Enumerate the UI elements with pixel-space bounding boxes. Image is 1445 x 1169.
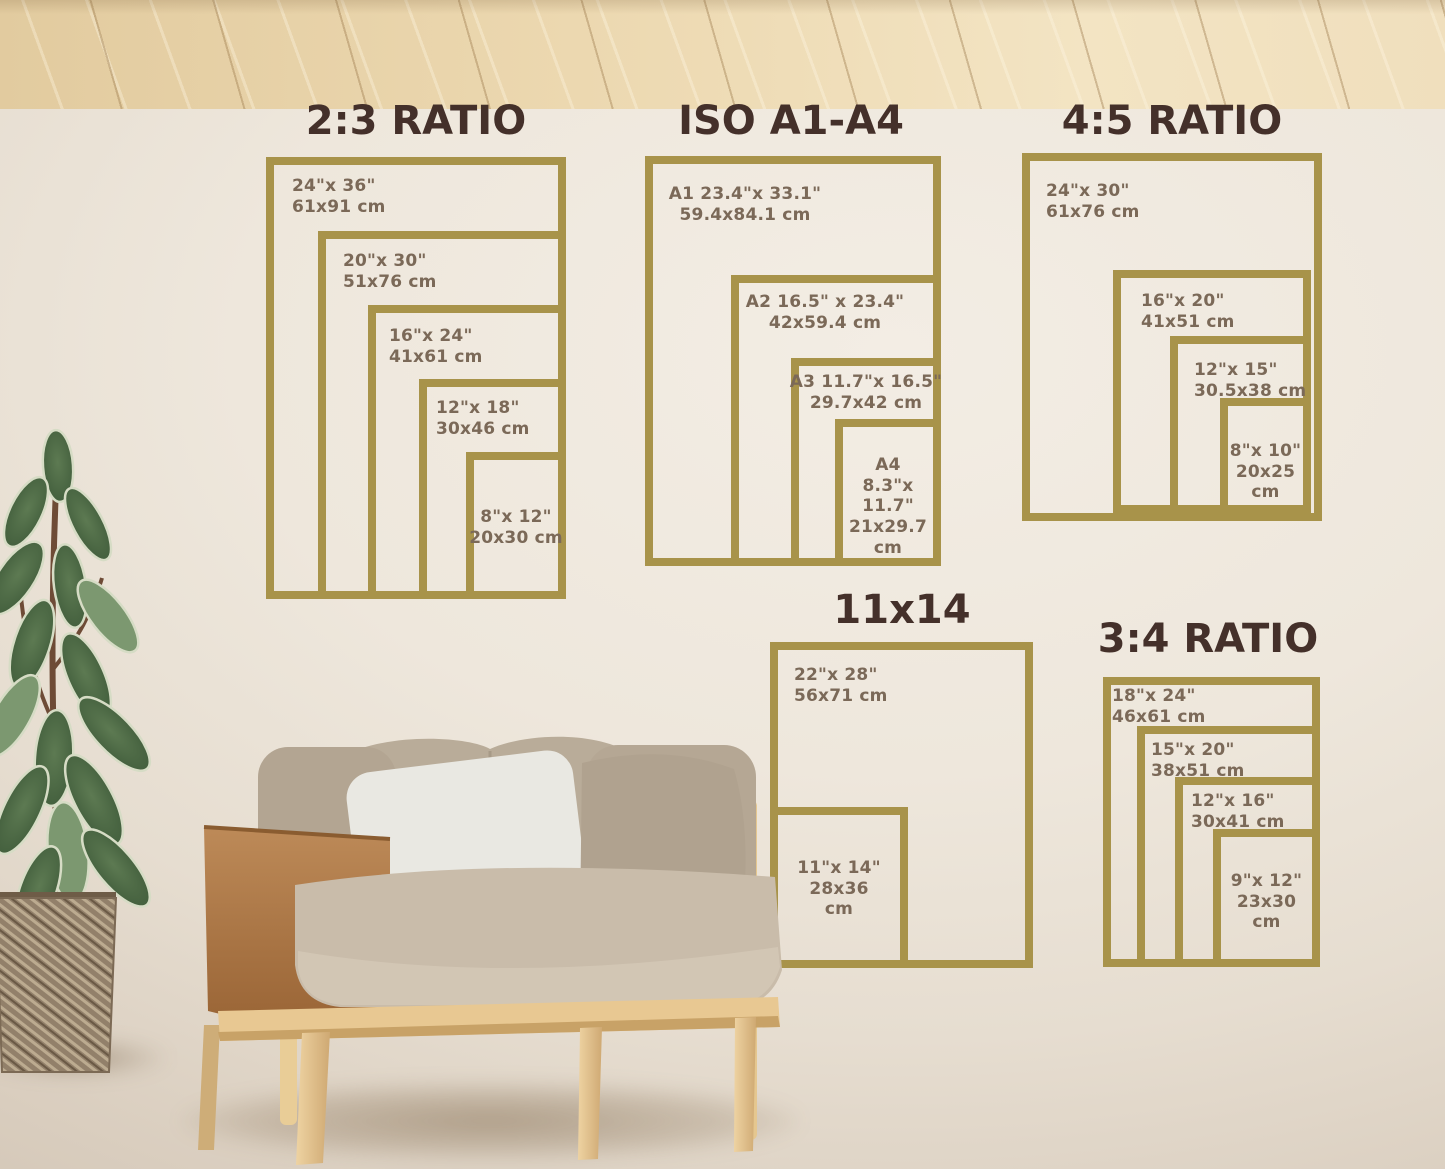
size-metric: 61x91 cm <box>292 197 386 218</box>
size-imperial: 22"x 28" <box>794 665 888 686</box>
frame-label: A3 11.7"x 16.5" 29.7x42 cm <box>778 372 954 413</box>
size-metric-unit: cm <box>770 899 908 920</box>
size-metric: 59.4x84.1 cm <box>645 205 845 226</box>
size-imperial: 9"x 12" <box>1213 871 1320 892</box>
size-metric-unit: cm <box>1213 912 1320 933</box>
size-metric: 56x71 cm <box>794 686 888 707</box>
size-metric: 46x61 cm <box>1112 707 1206 728</box>
size-metric: 41x61 cm <box>389 347 483 368</box>
frame-label: 12"x 18" 30x46 cm <box>436 398 530 439</box>
size-metric: 30.5x38 cm <box>1194 381 1306 402</box>
size-imperial: 16"x 24" <box>389 326 483 347</box>
size-imperial: 12"x 16" <box>1191 791 1285 812</box>
group-title: ISO A1-A4 <box>641 100 941 142</box>
size-metric: 30x41 cm <box>1191 812 1285 833</box>
armchair <box>190 735 790 1165</box>
size-imperial: 8.3"x 11.7" <box>835 476 941 517</box>
frame-label: A4 8.3"x 11.7" 21x29.7 cm <box>835 455 941 559</box>
size-metric: 42x59.4 cm <box>735 313 915 334</box>
frame-label: 12"x 16" 30x41 cm <box>1191 791 1285 832</box>
size-metric: 28x36 <box>770 879 908 900</box>
size-imperial: 18"x 24" <box>1112 686 1206 707</box>
group-title: 2:3 RATIO <box>266 100 566 142</box>
size-imperial: 16"x 20" <box>1141 291 1235 312</box>
size-metric: 23x30 <box>1213 892 1320 913</box>
size-metric: 51x76 cm <box>343 272 437 293</box>
size-metric: 29.7x42 cm <box>778 393 954 414</box>
size-name: A4 <box>835 455 941 476</box>
size-metric: 21x29.7 <box>835 517 941 538</box>
size-metric-unit: cm <box>835 538 941 559</box>
frame-label: 16"x 24" 41x61 cm <box>389 326 483 367</box>
group-title: 11x14 <box>768 589 1036 631</box>
frame-label: A1 23.4"x 33.1" 59.4x84.1 cm <box>645 184 845 225</box>
size-metric: 61x76 cm <box>1046 202 1140 223</box>
size-imperial: A2 16.5" x 23.4" <box>735 292 915 313</box>
size-imperial: 24"x 30" <box>1046 181 1140 202</box>
frame-label: 20"x 30" 51x76 cm <box>343 251 437 292</box>
size-imperial: A1 23.4"x 33.1" <box>645 184 845 205</box>
frame-label: 24"x 36" 61x91 cm <box>292 176 386 217</box>
size-metric-unit: cm <box>1220 482 1311 503</box>
size-imperial: 24"x 36" <box>292 176 386 197</box>
size-metric: 30x46 cm <box>436 419 530 440</box>
size-metric: 38x51 cm <box>1151 761 1245 782</box>
size-imperial: 8"x 12" <box>466 507 566 528</box>
frame-label: 24"x 30" 61x76 cm <box>1046 181 1140 222</box>
wood-floor <box>0 0 1445 109</box>
size-metric: 20x25 <box>1220 462 1311 483</box>
size-metric: 41x51 cm <box>1141 312 1235 333</box>
frame-label: 18"x 24" 46x61 cm <box>1112 686 1206 727</box>
frame-label: 15"x 20" 38x51 cm <box>1151 740 1245 781</box>
size-imperial: A3 11.7"x 16.5" <box>778 372 954 393</box>
size-metric: 20x30 cm <box>466 528 566 549</box>
room-scene: 2:3 RATIO 24"x 36" 61x91 cm 20"x 30" 51x… <box>0 0 1445 1169</box>
size-imperial: 20"x 30" <box>343 251 437 272</box>
size-imperial: 12"x 15" <box>1194 360 1306 381</box>
frame-label: 11"x 14" 28x36 cm <box>770 858 908 920</box>
frame-label: A2 16.5" x 23.4" 42x59.4 cm <box>735 292 915 333</box>
frame-label: 16"x 20" 41x51 cm <box>1141 291 1235 332</box>
size-imperial: 11"x 14" <box>770 858 908 879</box>
frame-label: 8"x 12" 20x30 cm <box>466 507 566 548</box>
size-imperial: 15"x 20" <box>1151 740 1245 761</box>
frame-label: 22"x 28" 56x71 cm <box>794 665 888 706</box>
frame-label: 9"x 12" 23x30 cm <box>1213 871 1320 933</box>
group-title: 3:4 RATIO <box>1058 618 1358 660</box>
frame-label: 8"x 10" 20x25 cm <box>1220 441 1311 503</box>
size-imperial: 12"x 18" <box>436 398 530 419</box>
size-imperial: 8"x 10" <box>1220 441 1311 462</box>
group-title: 4:5 RATIO <box>1022 100 1322 142</box>
potted-plant <box>0 428 166 1078</box>
frame-label: 12"x 15" 30.5x38 cm <box>1194 360 1306 401</box>
